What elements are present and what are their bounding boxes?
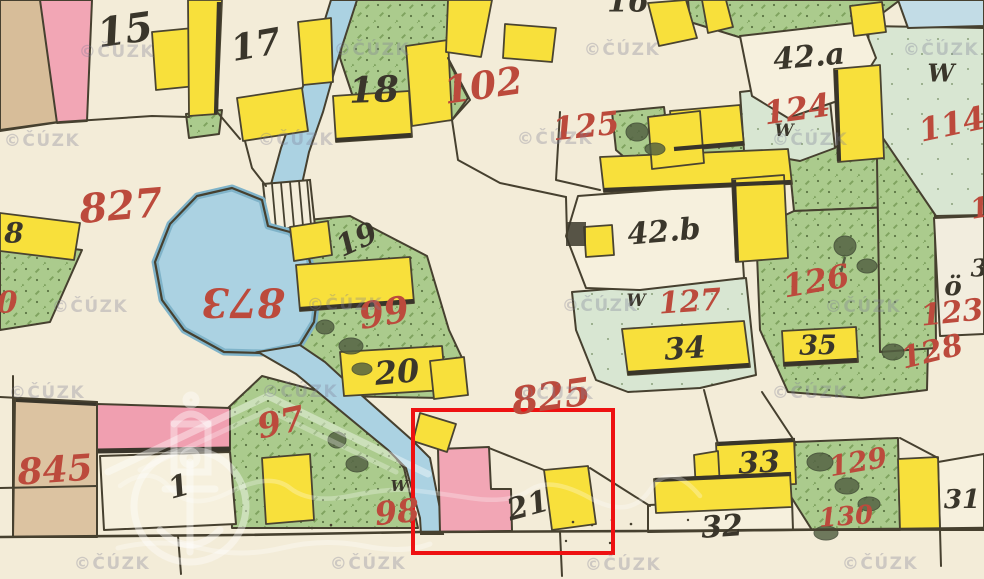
- cuzk-watermark: ©ČÚZK: [307, 295, 383, 315]
- cuzk-watermark: ©ČÚZK: [4, 131, 80, 151]
- watermark-layer: ©ČÚZK©ČÚZK©ČÚZK©ČÚZK©ČÚZK©ČÚZK©ČÚZK©ČÚZK…: [0, 0, 984, 579]
- cuzk-watermark: ©ČÚZK: [9, 383, 85, 403]
- cuzk-watermark: ©ČÚZK: [772, 130, 848, 150]
- cuzk-watermark: ©ČÚZK: [262, 382, 338, 402]
- cuzk-watermark: ©ČÚZK: [772, 383, 848, 403]
- cuzk-watermark: ©ČÚZK: [584, 40, 660, 60]
- cuzk-watermark: ©ČÚZK: [825, 297, 901, 317]
- cuzk-watermark: ©ČÚZK: [517, 129, 593, 149]
- cuzk-watermark: ©ČÚZK: [562, 296, 638, 316]
- cuzk-watermark: ©ČÚZK: [585, 555, 661, 575]
- cuzk-watermark: ©ČÚZK: [518, 384, 594, 404]
- cuzk-watermark: ©ČÚZK: [74, 554, 150, 574]
- cuzk-watermark: ©ČÚZK: [258, 130, 334, 150]
- cadastral-map-canvas[interactable]: 1517161842.aW42.b1920WWW3435ö81213233313…: [0, 0, 984, 579]
- cuzk-watermark: ©ČÚZK: [842, 554, 918, 574]
- cuzk-watermark: ©ČÚZK: [79, 42, 155, 62]
- cuzk-watermark: ©ČÚZK: [330, 554, 406, 574]
- cuzk-watermark: ©ČÚZK: [334, 40, 410, 60]
- cuzk-watermark: ©ČÚZK: [52, 297, 128, 317]
- cuzk-watermark: ©ČÚZK: [903, 40, 979, 60]
